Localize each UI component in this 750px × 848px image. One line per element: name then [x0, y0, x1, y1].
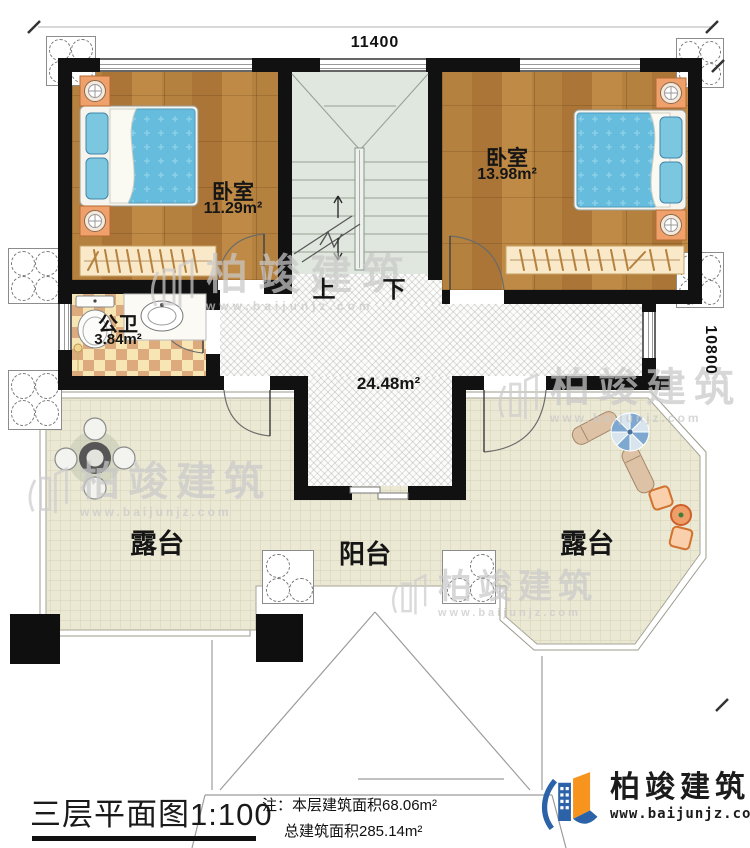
area-note: 注：本层建筑面积68.06m² 总建筑面积285.14m² — [262, 794, 437, 841]
brand-logo: 柏竣建筑 www.baijunjz.com — [540, 770, 750, 838]
brand-url: www.baijunjz.com — [610, 806, 750, 822]
stairs — [292, 74, 428, 270]
umbrella — [611, 413, 649, 451]
door-arc-bedroom-right — [450, 236, 504, 290]
door-arc-terrace-right — [484, 390, 546, 452]
balcony-sliding-door — [350, 487, 408, 499]
brand-text: 柏竣建筑 www.baijunjz.com — [610, 770, 750, 822]
terrace-dining-set — [55, 418, 135, 499]
room-label-terrace-left: 露台 — [95, 522, 219, 561]
bed-right — [574, 110, 686, 210]
page-title: 三层平面图1:100 — [30, 789, 273, 834]
dimension-right: 10800 — [699, 315, 719, 385]
brand-name: 柏竣建筑 — [610, 770, 750, 806]
area-note-line2: 总建筑面积285.14m² — [284, 820, 437, 841]
dimension-top: 11400 — [340, 34, 410, 52]
stair-break-line — [294, 216, 360, 262]
detail-layer — [0, 0, 750, 848]
area-note-line1: 注：本层建筑面积68.06m² — [262, 794, 437, 815]
floor-drain — [74, 344, 82, 374]
brand-logo-icon — [540, 770, 604, 838]
door-arc-bedroom-left — [218, 234, 264, 280]
patio-chair-set — [648, 485, 693, 550]
wardrobe-left — [80, 246, 216, 276]
stair-label-up: 上 — [302, 270, 346, 304]
room-area-bedroom-left: 11.29m² — [160, 200, 306, 218]
stair-label-down: 下 — [372, 270, 416, 304]
room-area-bedroom-right: 13.98m² — [432, 166, 582, 184]
room-label-terrace-right: 露台 — [525, 522, 649, 561]
room-area-hall: 24.48m² — [316, 374, 461, 394]
room-area-bathroom: 3.84m² — [56, 331, 180, 348]
room-label-balcony: 阳台 — [303, 534, 427, 571]
floor-plan-page: 柏竣建筑 www.baijunjz.com 柏竣建筑 www.baijunjz.… — [0, 0, 750, 848]
wardrobe-right — [506, 246, 684, 274]
stair-direction-arrows — [334, 196, 342, 260]
door-arc-terrace-left — [224, 390, 270, 436]
title-underline — [32, 836, 256, 841]
